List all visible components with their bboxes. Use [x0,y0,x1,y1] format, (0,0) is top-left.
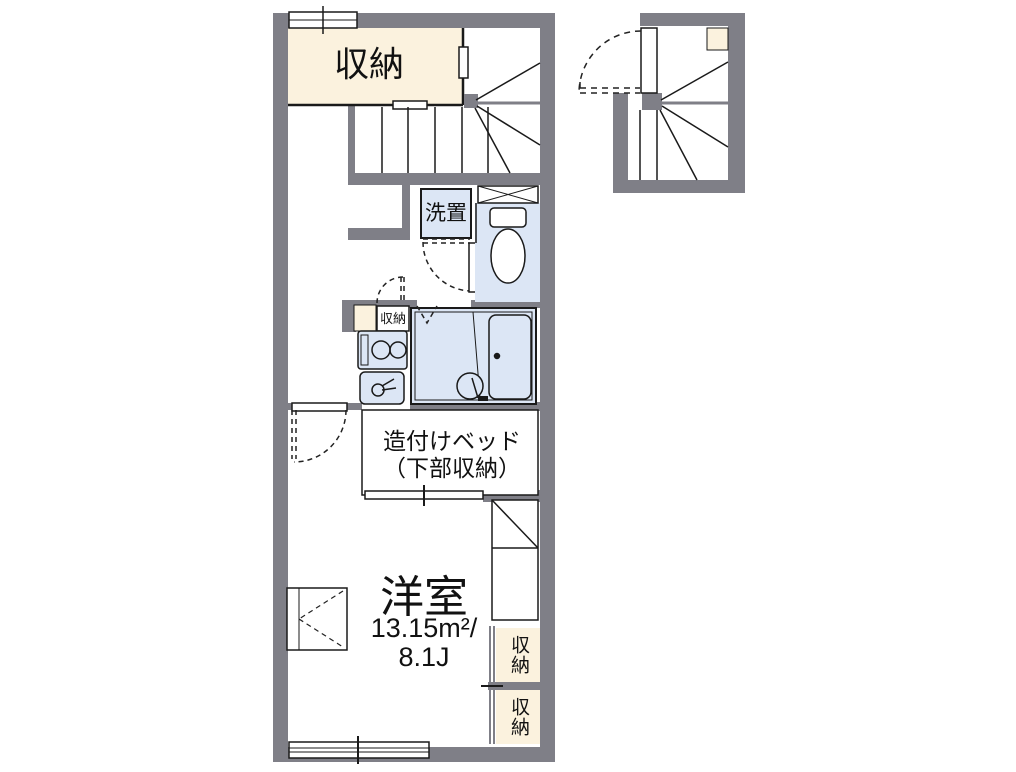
kitchen-closet-nook [354,305,376,331]
kitchen-area [354,277,409,404]
door-arc [294,410,346,462]
stove-icon [358,331,407,369]
entry-staircase [579,13,745,193]
closet-door-bar [393,101,427,109]
entry-cream-nook [707,28,728,50]
door-lintel [292,403,347,411]
room-area-line1: 13.15m²/ [371,614,478,642]
toilet-room [475,186,540,302]
room-area-line2: 8.1J [398,643,449,671]
floor-plan: 収納 洗置 収納 造付けベッド （下部収納） 洋室 13.15m²/ 8.1J … [0,0,1016,772]
hall-door-arc [377,277,404,303]
sink-icon [360,372,404,404]
kitchen-closet-label: 収納 [380,312,406,326]
washer-label: 洗置 [425,203,467,225]
entry-door-arc [579,31,641,93]
shelf-x-box [478,186,538,203]
toilet-icon [490,208,526,283]
bed-label-line2: （下部収納） [383,456,521,480]
washroom-door-arc [423,239,472,291]
entry-door-leaf [641,28,657,93]
closet-top-label: 収納 [334,48,404,85]
bed-label-line1: 造付けベッド [383,429,521,453]
closet-right-upper-label: 収納 [508,635,528,675]
bathtub-icon [489,315,531,399]
closet-right-lower-label: 収納 [508,697,528,737]
bathroom [411,306,536,404]
closet-side-door [459,47,468,78]
window-bedroom-left [287,588,347,650]
bedroom-door [292,403,347,462]
